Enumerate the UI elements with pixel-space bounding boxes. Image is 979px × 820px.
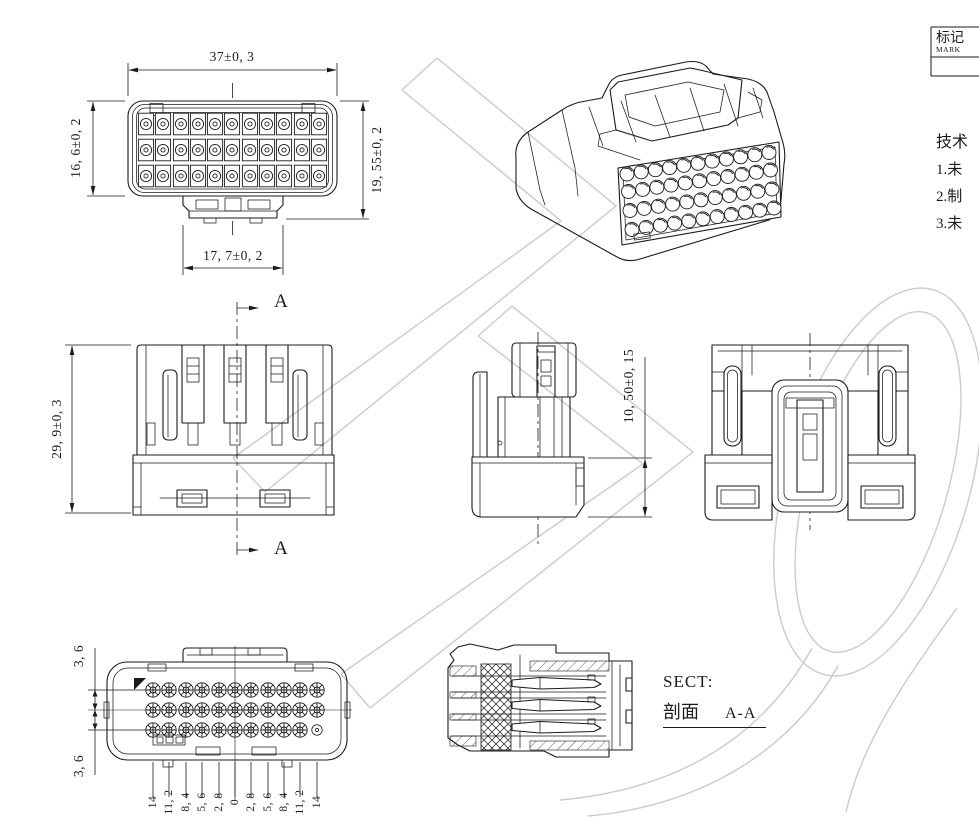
dim-side-height: 29, 9±0, 3: [49, 399, 65, 459]
drawing-canvas: [0, 0, 979, 820]
drawing-sheet: 37±0, 3 16, 6±0, 2 19, 55±0, 2 17, 7±0, …: [0, 0, 979, 820]
technical-note-item: 2.制: [936, 185, 968, 206]
iso-view: [516, 62, 785, 261]
pin-view-body: [104, 648, 350, 767]
dim-pin-row-pitch-bottom: 3, 6: [71, 755, 87, 777]
pin-column-label: 5, 6: [196, 792, 208, 811]
dim-front-height-right: 19, 55±0, 2: [369, 127, 385, 194]
rear-view-body: [705, 345, 915, 520]
section-caption-cn: 剖面: [663, 698, 699, 724]
pin-column-label: 0: [229, 799, 241, 805]
side-view-body: [133, 345, 334, 515]
middle-view-dimensions: [588, 357, 652, 517]
pin-column-label: 2, 8: [245, 792, 257, 811]
section-view: [448, 644, 632, 757]
pin-column-label: 8, 4: [180, 792, 192, 811]
section-arrow-label-bottom: A: [274, 538, 288, 560]
pin-layout-view: [88, 646, 352, 800]
pin-column-label: 8, 4: [278, 792, 290, 811]
dim-front-tab-width: 17, 7±0, 2: [203, 248, 263, 264]
dim-pin-row-pitch-top: 3, 6: [71, 645, 87, 667]
section-caption: SECT: 剖面 A-A: [663, 672, 766, 728]
section-caption-ref: A-A: [725, 705, 756, 723]
dim-middle-height: 10, 50±0, 15: [621, 349, 637, 423]
section-arrow-label-top: A: [274, 291, 288, 313]
side-view-dimensions: [65, 345, 131, 513]
pin-column-label: 14: [147, 796, 159, 809]
side-view: [65, 302, 334, 558]
pin-column-label: 11, 2: [294, 789, 306, 814]
dim-front-height-left: 16, 6±0, 2: [68, 118, 84, 178]
rear-view: [705, 333, 915, 530]
technical-notes: 技术 1.未 2.制 3.未: [936, 128, 968, 233]
pin-column-label: 2, 8: [213, 792, 225, 811]
pin-column-label: 14: [311, 796, 323, 809]
technical-note-item: 1.未: [936, 158, 968, 179]
section-terminals: [512, 675, 601, 733]
technical-notes-heading: 技术: [936, 128, 968, 152]
section-caption-en: SECT:: [663, 672, 766, 692]
pin-column-label: 11, 2: [163, 789, 175, 814]
technical-note-item: 3.未: [936, 212, 968, 233]
title-block-mark-en: MARK: [936, 45, 961, 54]
front-view-terminal-grid: [138, 113, 326, 187]
pin-column-label: 5, 6: [262, 792, 274, 811]
front-view: [87, 63, 369, 275]
title-block-mark-cn: 标记: [936, 27, 964, 47]
dim-front-width: 37±0, 3: [210, 49, 255, 65]
middle-view-body: [472, 343, 584, 517]
pin-grid: [146, 683, 324, 737]
